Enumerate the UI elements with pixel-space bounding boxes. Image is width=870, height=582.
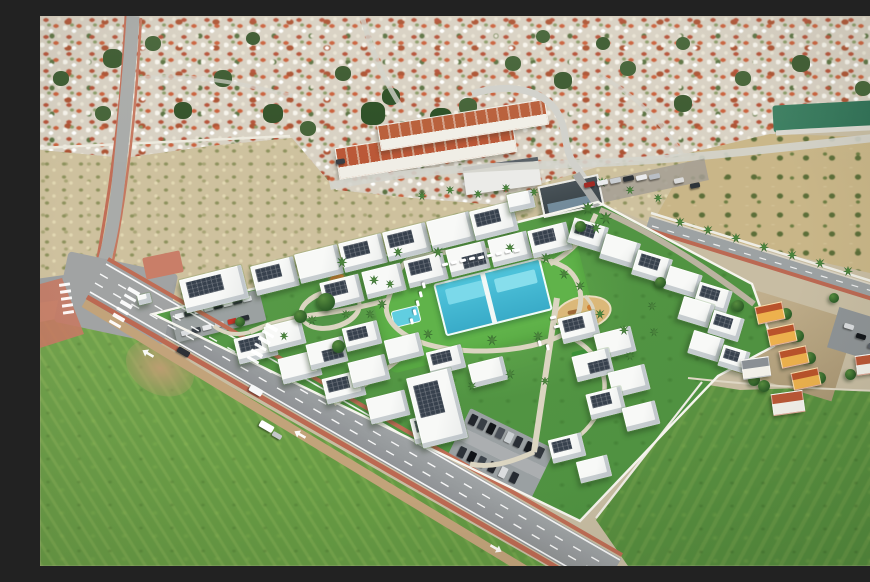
tree-icon — [332, 340, 345, 353]
parked-car — [534, 446, 545, 459]
tree-icon — [845, 369, 856, 380]
solar-panel — [408, 258, 433, 276]
parked-car — [215, 321, 225, 328]
parked-car — [202, 324, 212, 331]
tree-icon — [655, 277, 666, 288]
parked-car — [174, 312, 184, 319]
town-tree-clusters — [40, 16, 46, 21]
tree-icon — [732, 300, 744, 312]
palm-tree-icon — [815, 258, 825, 268]
solar-panel — [186, 274, 225, 298]
parked-car — [487, 461, 498, 474]
crosswalk-stripe — [60, 296, 71, 301]
solar-panel — [562, 316, 586, 333]
solar-panel — [413, 380, 446, 418]
tree-icon — [758, 380, 770, 392]
house-with-roof — [771, 390, 806, 416]
parked-car — [476, 455, 487, 468]
parked-car — [191, 327, 201, 334]
tree-icon — [829, 293, 839, 303]
solar-panel — [552, 438, 573, 453]
solar-panel — [474, 208, 501, 227]
solar-panel — [723, 348, 741, 362]
tree-icon — [235, 317, 245, 327]
solar-panel — [326, 376, 351, 393]
aerial-photo: Aerial drone view of a new-build white r… — [40, 16, 870, 566]
tree-icon — [575, 221, 586, 232]
palm-tree-icon — [843, 266, 853, 276]
solar-panel — [346, 326, 368, 342]
house-with-roof — [741, 356, 772, 380]
pool-lap-area — [494, 269, 538, 293]
parked-car — [456, 446, 467, 459]
solar-panel — [590, 392, 612, 408]
crosswalk-stripe — [59, 289, 70, 294]
parked-car — [181, 329, 191, 336]
crosswalk-stripe — [61, 303, 72, 308]
parked-car — [508, 471, 519, 484]
tree-icon — [294, 310, 307, 323]
solar-panel — [713, 314, 733, 330]
solar-panel — [638, 253, 661, 270]
solar-panel — [699, 285, 720, 301]
tree-icon — [317, 293, 335, 311]
solar-panel — [430, 350, 452, 366]
solar-panel — [343, 240, 370, 259]
house-with-roof — [855, 352, 870, 376]
parked-car — [523, 441, 534, 454]
parked-car — [498, 466, 509, 479]
solar-panel — [255, 263, 282, 282]
solar-panel — [387, 229, 414, 248]
pool-shallow-area — [445, 280, 486, 305]
parked-car — [466, 451, 477, 464]
parked-car — [513, 435, 524, 448]
solar-panel — [532, 228, 557, 246]
